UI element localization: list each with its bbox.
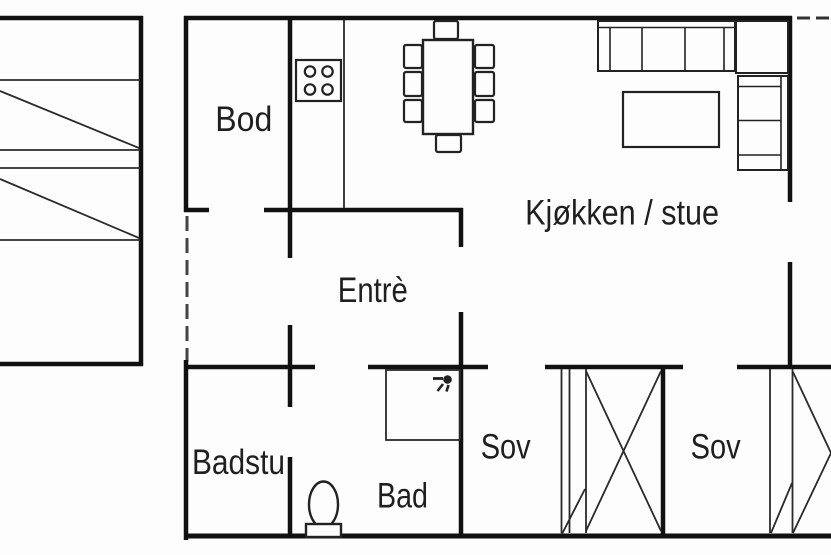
- svg-text:Bod: Bod: [215, 100, 272, 139]
- svg-text:Badstu: Badstu: [192, 443, 285, 482]
- svg-text:Sov: Sov: [481, 428, 531, 467]
- svg-text:Sov: Sov: [691, 428, 741, 467]
- svg-text:Kjøkken / stue: Kjøkken / stue: [525, 194, 719, 233]
- svg-text:Entrè: Entrè: [338, 271, 408, 310]
- svg-text:Bad: Bad: [377, 477, 428, 516]
